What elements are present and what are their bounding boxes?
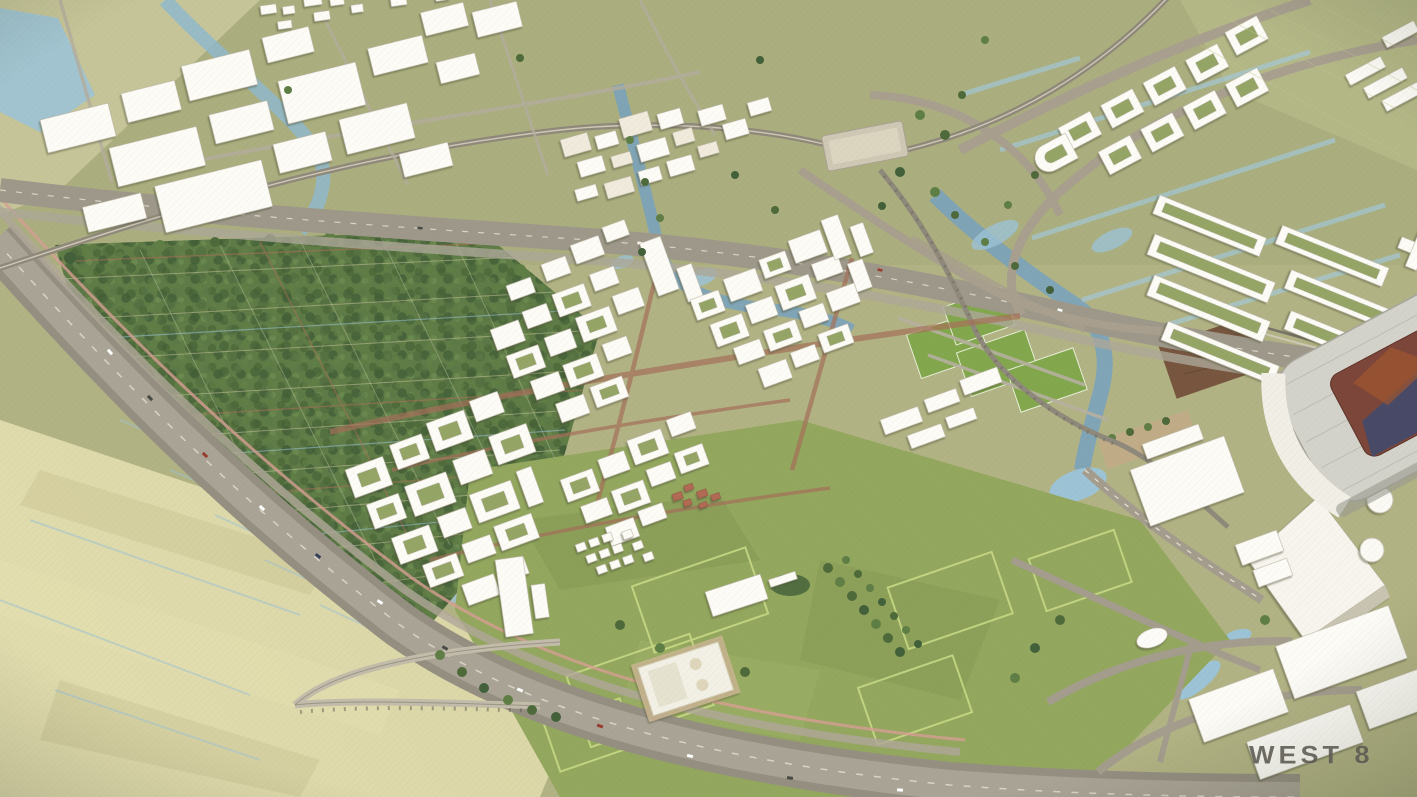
rendering-canvas [0,0,1417,797]
aerial-masterplan-rendering: WEST 8 [0,0,1417,797]
pencil-texture-overlay [0,0,1417,797]
west8-logo-watermark: WEST 8 [1249,741,1409,770]
